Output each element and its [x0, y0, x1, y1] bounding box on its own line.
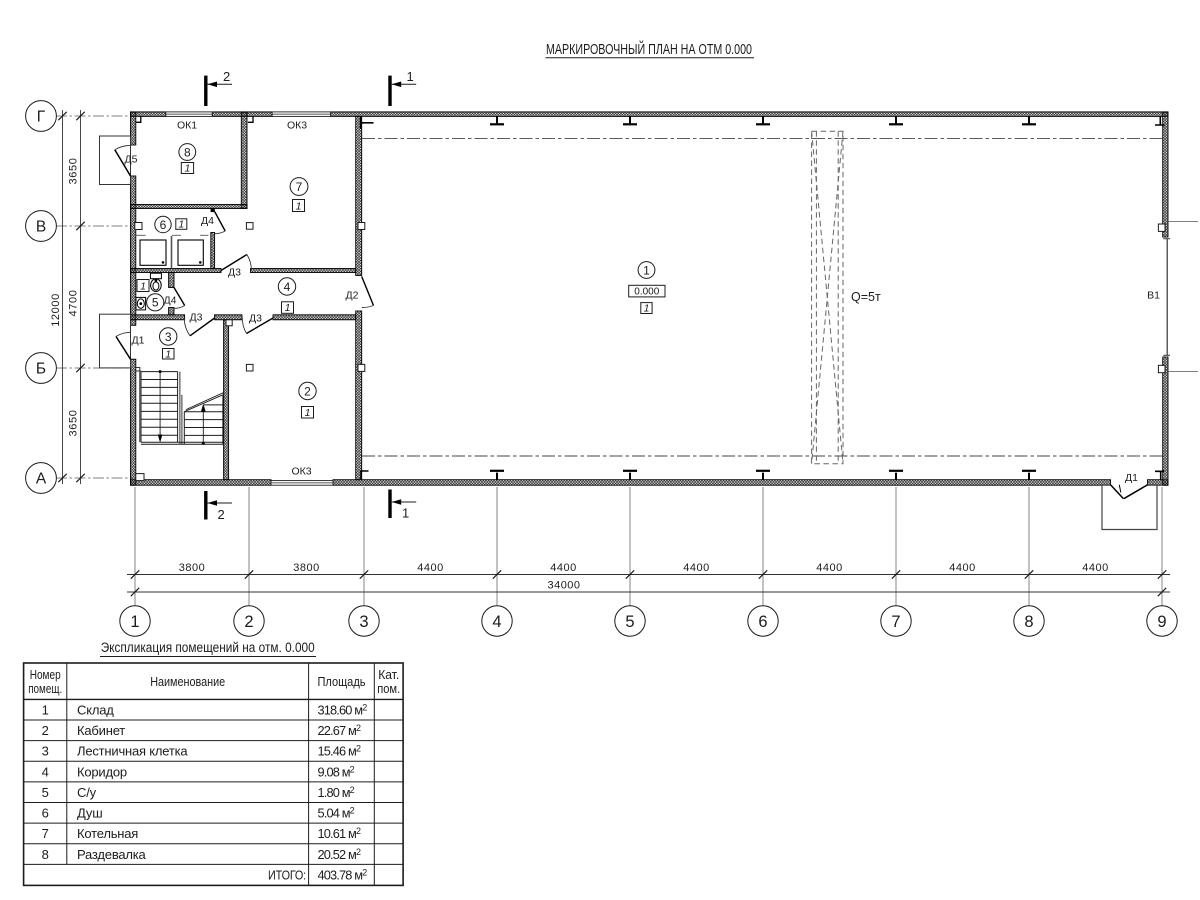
svg-text:4400: 4400 — [683, 562, 709, 574]
svg-text:4400: 4400 — [1082, 562, 1108, 574]
svg-text:МАРКИРОВОЧНЫЙ ПЛАН НА ОТМ 0.00: МАРКИРОВОЧНЫЙ ПЛАН НА ОТМ 0.000 — [546, 40, 752, 58]
svg-text:4400: 4400 — [949, 562, 975, 574]
svg-text:Душ: Душ — [77, 806, 102, 821]
svg-text:А: А — [36, 471, 47, 488]
svg-text:Номер: Номер — [30, 668, 61, 682]
svg-text:6: 6 — [160, 218, 167, 232]
svg-text:1.80 м2: 1.80 м2 — [318, 785, 355, 800]
svg-text:1: 1 — [407, 69, 414, 84]
svg-text:Площадь: Площадь — [318, 675, 366, 689]
svg-text:5: 5 — [625, 613, 634, 631]
svg-text:1: 1 — [130, 613, 139, 631]
svg-text:2: 2 — [244, 613, 253, 631]
svg-text:7: 7 — [42, 826, 49, 841]
svg-text:Д4: Д4 — [201, 215, 214, 227]
svg-text:помещ.: помещ. — [28, 682, 62, 696]
svg-text:7: 7 — [296, 180, 303, 194]
svg-text:8: 8 — [184, 145, 191, 159]
svg-text:Д3: Д3 — [190, 312, 203, 324]
svg-text:Коридор: Коридор — [77, 764, 127, 779]
svg-text:2: 2 — [218, 507, 225, 522]
svg-text:Д3: Д3 — [249, 313, 262, 325]
svg-text:Г: Г — [37, 109, 46, 126]
svg-text:Наименование: Наименование — [150, 675, 225, 689]
svg-text:4400: 4400 — [550, 562, 576, 574]
svg-text:1: 1 — [285, 302, 291, 314]
svg-text:15.46 м2: 15.46 м2 — [318, 744, 361, 759]
svg-text:ОК3: ОК3 — [287, 120, 307, 132]
svg-text:В1: В1 — [1147, 289, 1160, 301]
svg-text:1: 1 — [402, 506, 409, 521]
svg-text:1: 1 — [178, 219, 184, 231]
svg-text:20.52 м2: 20.52 м2 — [318, 847, 361, 862]
svg-text:22.67 м2: 22.67 м2 — [318, 723, 361, 738]
svg-text:5: 5 — [152, 296, 159, 310]
svg-text:1: 1 — [305, 407, 311, 419]
svg-text:Д1: Д1 — [132, 334, 145, 346]
svg-text:3800: 3800 — [293, 562, 319, 574]
svg-text:3: 3 — [165, 330, 172, 344]
svg-text:ИТОГО:: ИТОГО: — [268, 868, 306, 883]
svg-text:1: 1 — [165, 348, 171, 360]
svg-text:2: 2 — [304, 384, 311, 398]
svg-text:4: 4 — [42, 764, 49, 779]
svg-text:Кат.: Кат. — [378, 668, 399, 682]
svg-text:1: 1 — [296, 200, 302, 212]
svg-text:8: 8 — [1024, 613, 1033, 631]
svg-text:1: 1 — [643, 263, 650, 277]
svg-text:9.08 м2: 9.08 м2 — [318, 764, 355, 779]
svg-text:3800: 3800 — [179, 562, 205, 574]
svg-text:403.78 м2: 403.78 м2 — [318, 868, 368, 883]
svg-text:пом.: пом. — [377, 682, 400, 696]
svg-text:Д4: Д4 — [164, 294, 177, 306]
svg-text:4700: 4700 — [68, 290, 80, 317]
svg-text:12000: 12000 — [50, 293, 62, 327]
svg-text:4400: 4400 — [417, 562, 443, 574]
svg-text:5: 5 — [42, 785, 49, 800]
svg-text:1: 1 — [140, 280, 146, 292]
svg-text:6: 6 — [758, 613, 767, 631]
svg-text:В: В — [36, 219, 46, 236]
svg-text:Лестничная клетка: Лестничная клетка — [77, 744, 188, 759]
svg-text:8: 8 — [42, 847, 49, 862]
svg-text:Склад: Склад — [77, 703, 114, 718]
svg-text:Д3: Д3 — [228, 266, 241, 278]
svg-text:3650: 3650 — [68, 410, 80, 437]
svg-text:7: 7 — [891, 613, 900, 631]
svg-text:5.04 м2: 5.04 м2 — [318, 806, 355, 821]
svg-text:Кабинет: Кабинет — [77, 723, 125, 738]
svg-text:1: 1 — [184, 163, 190, 175]
svg-text:2: 2 — [223, 69, 230, 84]
svg-text:Б: Б — [36, 361, 46, 378]
svg-text:1: 1 — [644, 303, 650, 315]
svg-text:3: 3 — [359, 613, 368, 631]
svg-text:ОК1: ОК1 — [177, 120, 197, 132]
svg-text:9: 9 — [1157, 613, 1166, 631]
svg-text:Q=5т: Q=5т — [851, 290, 881, 304]
svg-text:4: 4 — [492, 613, 501, 631]
svg-text:Д2: Д2 — [346, 289, 359, 301]
svg-text:ОК3: ОК3 — [291, 466, 311, 478]
svg-text:3650: 3650 — [68, 158, 80, 185]
svg-text:34000: 34000 — [547, 580, 580, 592]
svg-text:Экспликация помещений на отм.: Экспликация помещений на отм. 0.000 — [101, 640, 315, 655]
svg-text:1: 1 — [42, 703, 49, 718]
svg-text:3: 3 — [42, 744, 49, 759]
svg-text:4: 4 — [284, 280, 291, 294]
svg-text:10.61 м2: 10.61 м2 — [318, 826, 361, 841]
svg-text:Д5: Д5 — [125, 153, 138, 165]
svg-text:2: 2 — [42, 723, 49, 738]
svg-text:4400: 4400 — [816, 562, 842, 574]
svg-text:Д1: Д1 — [1125, 472, 1138, 484]
svg-text:318.60 м2: 318.60 м2 — [318, 703, 368, 718]
svg-text:С/у: С/у — [77, 785, 97, 800]
svg-text:Котельная: Котельная — [77, 826, 138, 841]
svg-text:6: 6 — [42, 806, 49, 821]
svg-text:Раздевалка: Раздевалка — [77, 847, 147, 862]
svg-text:0.000: 0.000 — [634, 287, 659, 298]
